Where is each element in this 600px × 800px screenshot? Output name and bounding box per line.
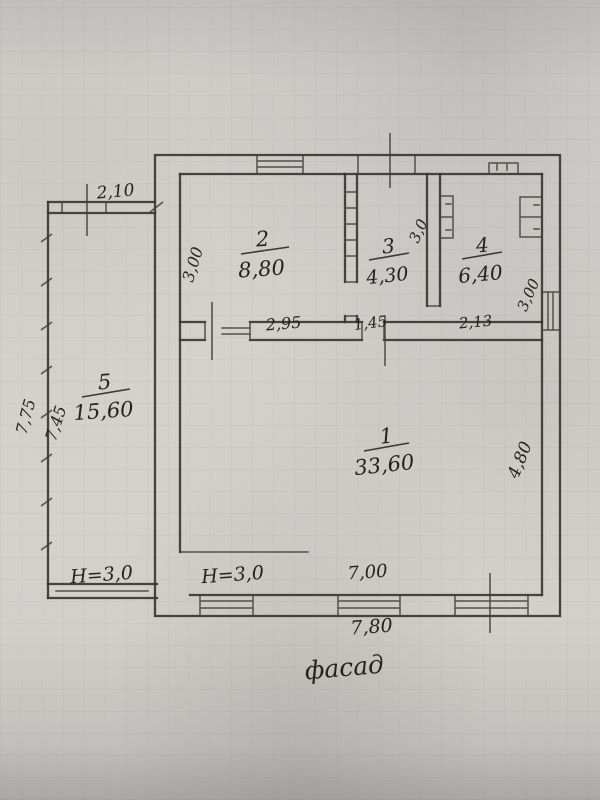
room-3-number: 3 — [381, 234, 396, 259]
dim-room-1-depth: 4,80 — [504, 439, 537, 483]
dim-room-4-depth: 3,00 — [513, 276, 543, 314]
room-5-number: 5 — [97, 370, 112, 395]
scanned-floor-plan-page: 2 8,80 3,00 2,95 3 4,30 3,0 1,45 4 6,40 … — [0, 0, 600, 800]
room-1-number: 1 — [378, 423, 394, 448]
room-5-height-label: H=3,0 — [69, 562, 134, 588]
room-2-number: 2 — [254, 227, 270, 252]
room-2-label: 2 8,80 — [237, 227, 289, 283]
dim-room-4-width: 2,13 — [457, 312, 493, 333]
room-1-area: 33,60 — [353, 450, 415, 480]
dim-room-3-width: 1,45 — [353, 312, 388, 334]
room-3-label: 3 4,30 — [364, 234, 409, 290]
room2-room3-divider-wall — [345, 174, 357, 322]
stove-symbols — [440, 196, 542, 238]
room-5-label: 5 15,60 — [73, 370, 135, 426]
room-4-area: 6,40 — [457, 260, 504, 288]
room3-room4-divider-wall — [427, 174, 440, 306]
room-4-label: 4 6,40 — [457, 233, 504, 288]
dim-annex-height-outer: 7,75 — [12, 397, 40, 436]
top-wall-joints — [358, 155, 415, 174]
chimney-symbol — [489, 163, 518, 174]
dim-facade-width-inner: 7,00 — [347, 561, 388, 585]
room-5-area: 15,60 — [73, 397, 135, 425]
dim-facade-width-outer: 7,80 — [350, 615, 394, 640]
room-1-height-label: H=3,0 — [200, 562, 265, 588]
bottom-wall-windows — [200, 595, 528, 616]
right-wall-window — [542, 292, 560, 330]
dim-annex-width-top: 2,10 — [95, 180, 136, 203]
facade-caption: фасад — [304, 650, 385, 686]
room-1-label: 1 33,60 — [353, 423, 415, 480]
room-3-area: 4,30 — [364, 263, 409, 289]
dim-annex-height-inner: 7,45 — [41, 403, 70, 443]
dim-room-2-width: 2,95 — [264, 313, 302, 335]
room-2-area: 8,80 — [237, 255, 285, 282]
floor-plan-drawing: 2 8,80 3,00 2,95 3 4,30 3,0 1,45 4 6,40 … — [0, 0, 600, 800]
dim-room-2-depth: 3,00 — [178, 245, 207, 285]
top-wall-window — [257, 155, 303, 174]
